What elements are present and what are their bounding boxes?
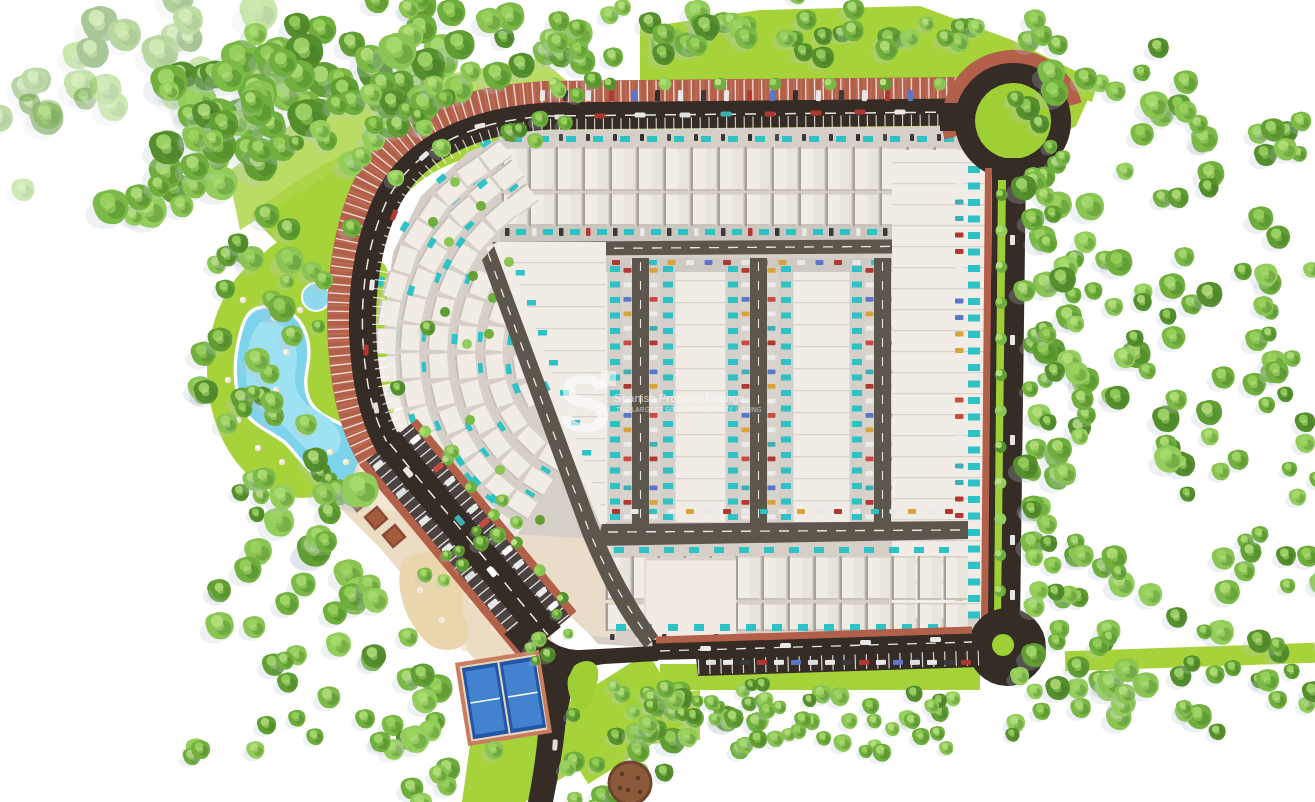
svg-text:THE LARGEST SPANISH PROPERTY L: THE LARGEST SPANISH PROPERTY LISTING (616, 406, 762, 413)
svg-text:Spanish Property Listings: Spanish Property Listings (614, 392, 745, 404)
